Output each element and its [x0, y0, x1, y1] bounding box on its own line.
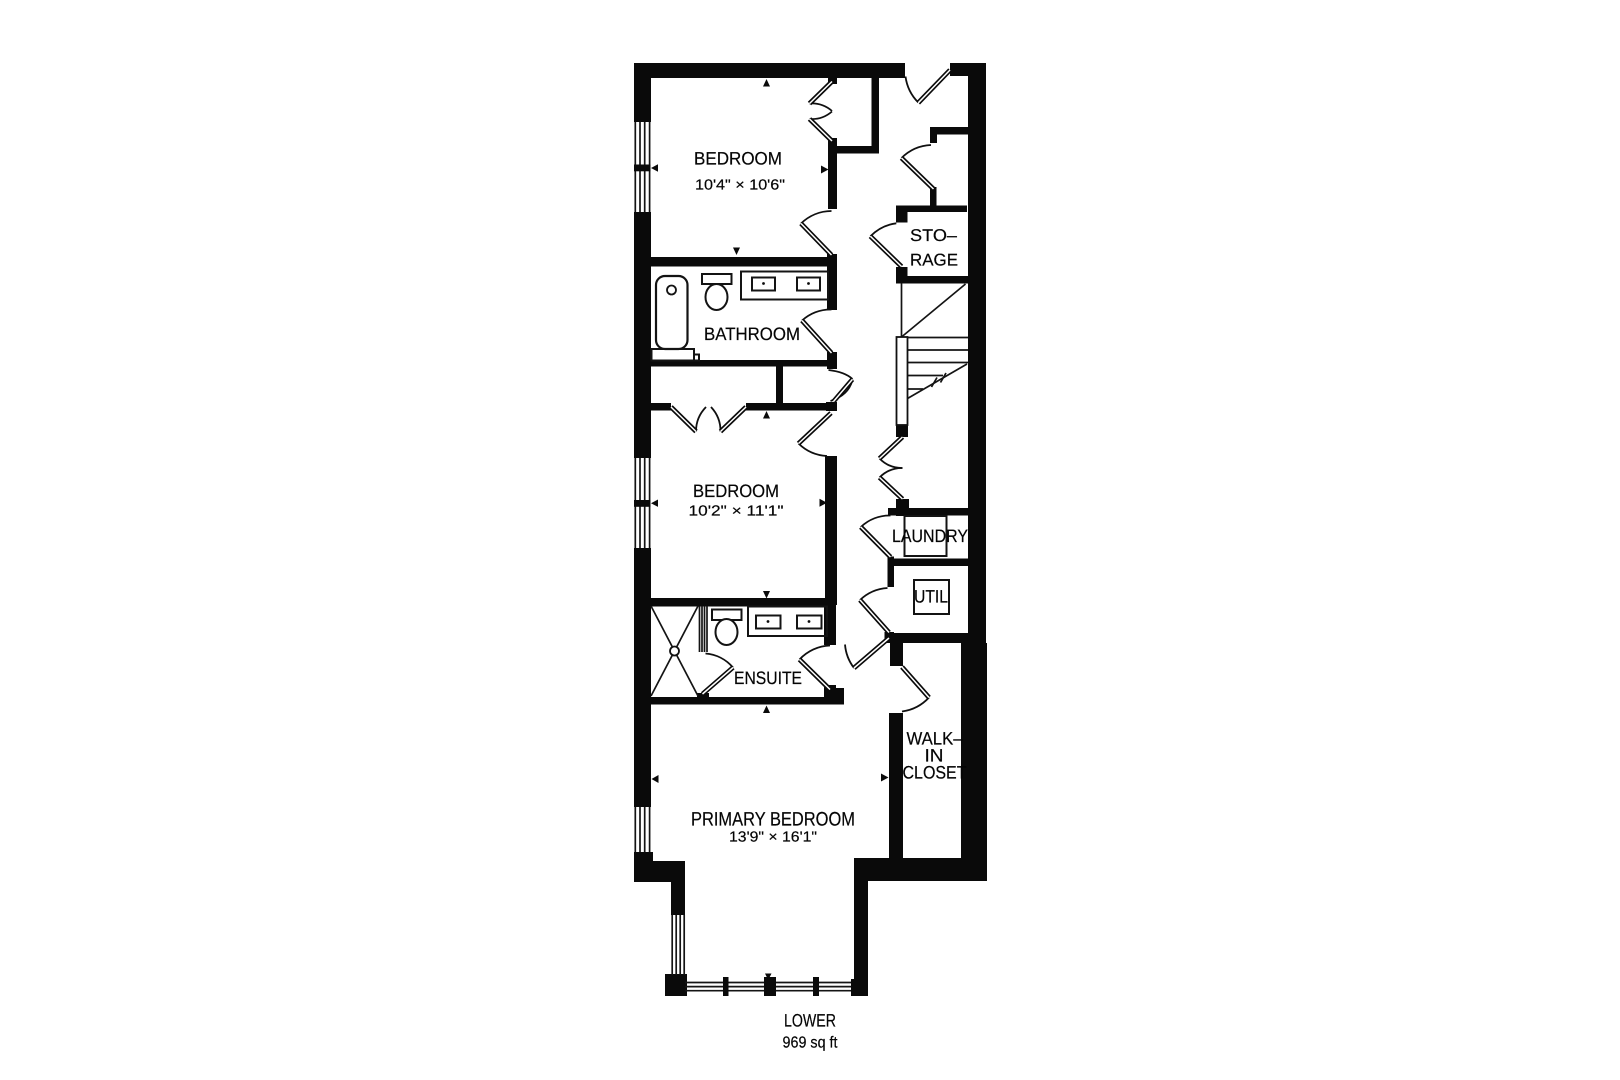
svg-text:10'2" × 11'1": 10'2" × 11'1": [689, 504, 784, 520]
svg-text:BEDROOM: BEDROOM: [693, 481, 779, 501]
svg-text:ENSUITE: ENSUITE: [734, 668, 802, 688]
svg-text:STO–: STO–: [910, 226, 958, 245]
svg-text:10'4" × 10'6": 10'4" × 10'6": [695, 178, 785, 194]
svg-text:RAGE: RAGE: [910, 251, 958, 270]
svg-text:13'9" × 16'1": 13'9" × 16'1": [729, 830, 817, 846]
svg-text:LOWER: LOWER: [784, 1011, 836, 1031]
svg-text:CLOSET: CLOSET: [903, 763, 967, 783]
svg-text:LAUNDRY: LAUNDRY: [892, 526, 968, 546]
svg-text:PRIMARY BEDROOM: PRIMARY BEDROOM: [691, 809, 855, 831]
svg-text:UTIL: UTIL: [914, 587, 948, 607]
svg-text:969 sq ft: 969 sq ft: [783, 1035, 838, 1052]
svg-text:BATHROOM: BATHROOM: [704, 324, 800, 344]
svg-text:BEDROOM: BEDROOM: [694, 149, 782, 169]
